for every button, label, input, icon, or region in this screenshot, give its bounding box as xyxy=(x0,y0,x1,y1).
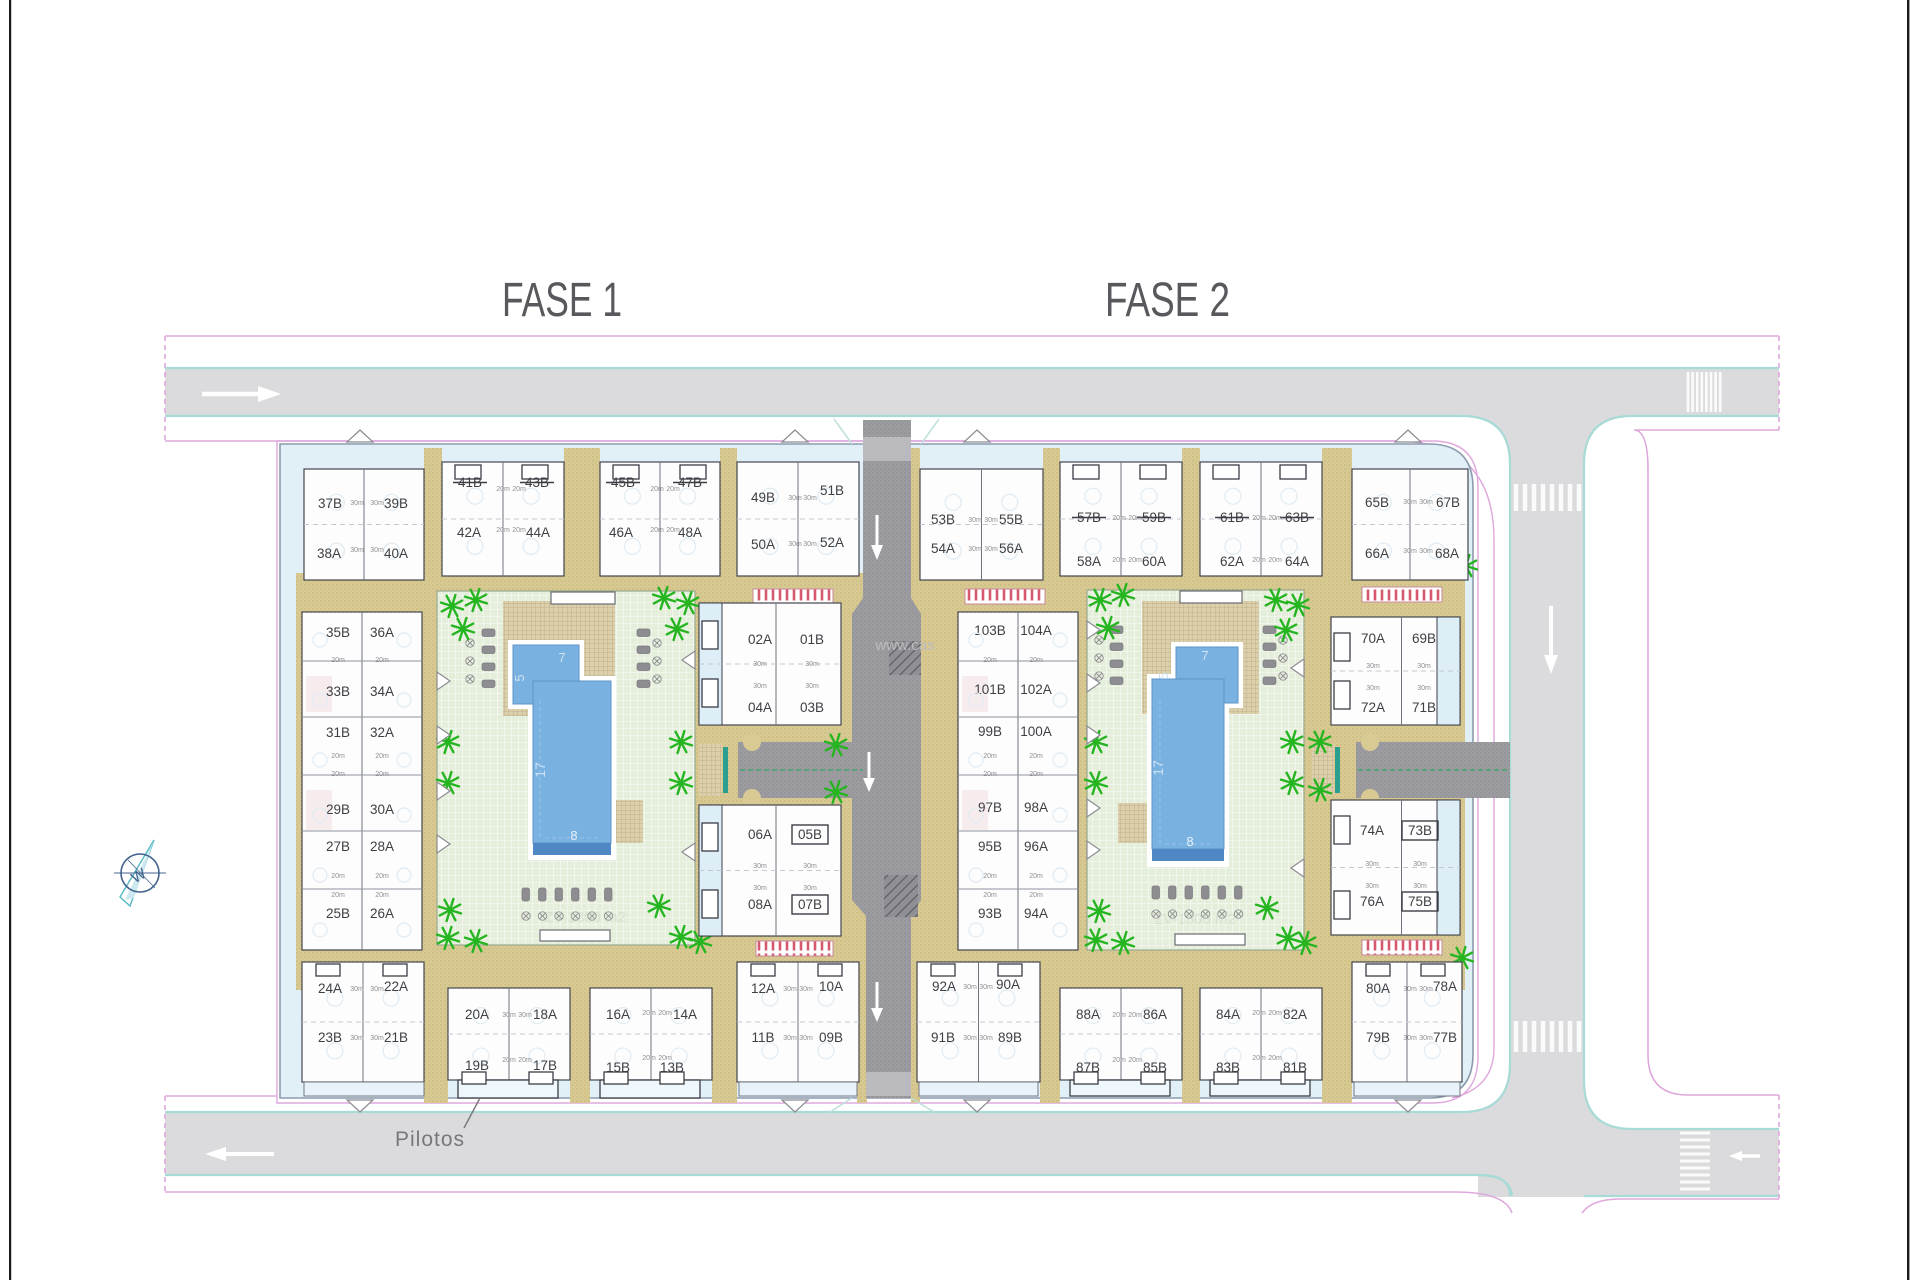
svg-text:7: 7 xyxy=(558,650,565,665)
svg-text:30m: 30m xyxy=(370,500,384,507)
svg-text:20m: 20m xyxy=(331,657,345,664)
svg-text:20m: 20m xyxy=(502,1057,516,1064)
svg-text:33B: 33B xyxy=(326,684,350,699)
svg-text:58A: 58A xyxy=(1077,554,1101,569)
svg-text:30m: 30m xyxy=(783,986,797,993)
svg-text:30m: 30m xyxy=(979,1035,993,1042)
svg-text:20m: 20m xyxy=(1112,515,1126,522)
svg-text:20m: 20m xyxy=(658,1055,672,1062)
svg-text:72A: 72A xyxy=(1361,700,1385,715)
svg-text:98A: 98A xyxy=(1024,800,1048,815)
svg-text:27B: 27B xyxy=(326,839,350,854)
svg-text:49B: 49B xyxy=(751,490,775,505)
svg-text:20m: 20m xyxy=(650,527,664,534)
svg-text:20m: 20m xyxy=(375,873,389,880)
svg-text:44A: 44A xyxy=(526,525,550,540)
svg-text:30m: 30m xyxy=(1419,1035,1433,1042)
svg-text:19B: 19B xyxy=(465,1058,489,1073)
svg-text:20m: 20m xyxy=(518,1057,532,1064)
svg-text:30m: 30m xyxy=(803,863,817,870)
svg-text:75B: 75B xyxy=(1408,894,1432,909)
svg-text:90A: 90A xyxy=(996,977,1020,992)
svg-text:11B: 11B xyxy=(751,1030,774,1045)
svg-text:30m: 30m xyxy=(963,1035,977,1042)
svg-text:20m: 20m xyxy=(331,771,345,778)
svg-text:30m: 30m xyxy=(350,547,364,554)
svg-text:71B: 71B xyxy=(1412,700,1436,715)
svg-text:30m: 30m xyxy=(1417,685,1431,692)
svg-text:80A: 80A xyxy=(1366,981,1390,996)
svg-text:25B: 25B xyxy=(326,906,350,921)
svg-text:30m: 30m xyxy=(350,500,364,507)
svg-text:17: 17 xyxy=(1150,760,1166,776)
svg-text:82A: 82A xyxy=(1283,1007,1307,1022)
svg-text:20m: 20m xyxy=(331,892,345,899)
svg-text:26A: 26A xyxy=(370,906,394,921)
svg-text:06A: 06A xyxy=(748,827,772,842)
svg-text:02A: 02A xyxy=(748,632,772,647)
svg-text:46A: 46A xyxy=(609,525,633,540)
svg-text:30m: 30m xyxy=(1403,986,1417,993)
svg-text:www.cas: www.cas xyxy=(874,637,934,654)
svg-text:54A: 54A xyxy=(931,541,955,556)
svg-text:20m: 20m xyxy=(1268,515,1282,522)
svg-text:20m: 20m xyxy=(1268,1010,1282,1017)
svg-text:30m: 30m xyxy=(1403,499,1417,506)
svg-text:30m: 30m xyxy=(1419,986,1433,993)
svg-text:48A: 48A xyxy=(678,525,702,540)
svg-text:30m: 30m xyxy=(1417,663,1431,670)
svg-text:30m: 30m xyxy=(502,1012,516,1019)
svg-text:30m: 30m xyxy=(1366,685,1380,692)
svg-text:39B: 39B xyxy=(384,496,408,511)
svg-text:03B: 03B xyxy=(800,700,824,715)
svg-text:67B: 67B xyxy=(1436,495,1460,510)
svg-text:100A: 100A xyxy=(1020,724,1052,739)
svg-text:20m: 20m xyxy=(375,771,389,778)
svg-text:73B: 73B xyxy=(1408,823,1432,838)
svg-text:22A: 22A xyxy=(384,979,408,994)
svg-text:21B: 21B xyxy=(384,1030,408,1045)
svg-text:20m: 20m xyxy=(1029,657,1043,664)
svg-text:88A: 88A xyxy=(1076,1007,1100,1022)
svg-text:20m: 20m xyxy=(1268,557,1282,564)
svg-text:30m: 30m xyxy=(1366,663,1380,670)
svg-text:20m: 20m xyxy=(512,527,526,534)
svg-text:53B: 53B xyxy=(931,512,955,527)
svg-text:30m: 30m xyxy=(783,1035,797,1042)
svg-text:20m: 20m xyxy=(375,753,389,760)
svg-text:28A: 28A xyxy=(370,839,394,854)
svg-text:31B: 31B xyxy=(326,725,350,740)
svg-text:08A: 08A xyxy=(748,897,772,912)
svg-text:30m: 30m xyxy=(753,661,767,668)
svg-text:24A: 24A xyxy=(318,981,342,996)
svg-text:93B: 93B xyxy=(978,906,1002,921)
svg-text:20m: 20m xyxy=(331,873,345,880)
svg-text:20m: 20m xyxy=(1112,1012,1126,1019)
svg-text:89B: 89B xyxy=(998,1030,1022,1045)
svg-text:5: 5 xyxy=(512,674,527,681)
svg-text:30m: 30m xyxy=(1403,1035,1417,1042)
svg-text:30m: 30m xyxy=(350,1035,364,1042)
svg-text:30m: 30m xyxy=(963,984,977,991)
svg-text:20m: 20m xyxy=(375,892,389,899)
svg-text:96A: 96A xyxy=(1024,839,1048,854)
svg-text:102A: 102A xyxy=(1020,682,1052,697)
svg-text:09B: 09B xyxy=(819,1030,843,1045)
svg-text:18A: 18A xyxy=(533,1007,557,1022)
svg-text:103B: 103B xyxy=(974,623,1006,638)
svg-text:30m: 30m xyxy=(370,547,384,554)
svg-text:91B: 91B xyxy=(931,1030,955,1045)
svg-text:30m: 30m xyxy=(788,541,802,548)
svg-text:69B: 69B xyxy=(1412,631,1436,646)
svg-text:74A: 74A xyxy=(1360,823,1384,838)
svg-text:20m: 20m xyxy=(642,1055,656,1062)
svg-text:40A: 40A xyxy=(384,546,408,561)
svg-text:51B: 51B xyxy=(820,483,844,498)
svg-text:30A: 30A xyxy=(370,802,394,817)
svg-text:16A: 16A xyxy=(606,1007,630,1022)
svg-text:30m: 30m xyxy=(805,661,819,668)
svg-text:76A: 76A xyxy=(1360,894,1384,909)
svg-text:30m: 30m xyxy=(1365,883,1379,890)
svg-text:20m: 20m xyxy=(1252,557,1266,564)
svg-text:30m: 30m xyxy=(1413,861,1427,868)
svg-text:20m: 20m xyxy=(1128,1057,1142,1064)
svg-text:20m: 20m xyxy=(1268,1055,1282,1062)
svg-text:42A: 42A xyxy=(457,525,481,540)
svg-text:20m: 20m xyxy=(650,486,664,493)
svg-text:35B: 35B xyxy=(326,625,350,640)
svg-text:37B: 37B xyxy=(318,496,342,511)
svg-text:30m: 30m xyxy=(788,495,802,502)
svg-text:78A: 78A xyxy=(1433,979,1457,994)
svg-text:20m: 20m xyxy=(512,486,526,493)
svg-text:64A: 64A xyxy=(1285,554,1309,569)
svg-text:30m: 30m xyxy=(350,986,364,993)
svg-text:20m: 20m xyxy=(1112,1057,1126,1064)
svg-text:20m: 20m xyxy=(1029,892,1043,899)
svg-text:8: 8 xyxy=(1186,834,1193,849)
svg-text:FASE 2: FASE 2 xyxy=(1105,274,1230,327)
svg-text:70A: 70A xyxy=(1361,631,1385,646)
svg-text:55B: 55B xyxy=(999,512,1023,527)
svg-text:86A: 86A xyxy=(1143,1007,1167,1022)
svg-text:20m: 20m xyxy=(983,657,997,664)
svg-text:32A: 32A xyxy=(370,725,394,740)
svg-text:20m: 20m xyxy=(1029,771,1043,778)
svg-text:04A: 04A xyxy=(748,700,772,715)
svg-text:07B: 07B xyxy=(798,897,822,912)
svg-text:10A: 10A xyxy=(819,979,843,994)
svg-text:30m: 30m xyxy=(370,1035,384,1042)
svg-text:20m: 20m xyxy=(1252,1010,1266,1017)
svg-text:20m: 20m xyxy=(642,1010,656,1017)
svg-text:12A: 12A xyxy=(751,981,775,996)
svg-text:01B: 01B xyxy=(800,632,824,647)
svg-text:60A: 60A xyxy=(1142,554,1166,569)
svg-text:30m: 30m xyxy=(1419,548,1433,555)
svg-text:20A: 20A xyxy=(465,1007,489,1022)
svg-text:92A: 92A xyxy=(932,979,956,994)
svg-text:23B: 23B xyxy=(318,1030,342,1045)
svg-text:30m: 30m xyxy=(803,885,817,892)
svg-text:30m: 30m xyxy=(1403,548,1417,555)
svg-text:30m: 30m xyxy=(518,1012,532,1019)
svg-text:20m: 20m xyxy=(496,527,510,534)
svg-text:20m: 20m xyxy=(1029,753,1043,760)
svg-text:30m: 30m xyxy=(968,517,982,524)
svg-text:30m: 30m xyxy=(805,683,819,690)
svg-text:30m: 30m xyxy=(803,541,817,548)
svg-text:94A: 94A xyxy=(1024,906,1048,921)
svg-text:97B: 97B xyxy=(978,800,1002,815)
svg-text:30m: 30m xyxy=(1365,861,1379,868)
svg-text:79B: 79B xyxy=(1366,1030,1390,1045)
svg-text:50A: 50A xyxy=(751,537,775,552)
svg-text:20m: 20m xyxy=(658,1010,672,1017)
svg-text:20m: 20m xyxy=(983,873,997,880)
svg-text:62A: 62A xyxy=(1220,554,1244,569)
svg-text:30m: 30m xyxy=(753,683,767,690)
svg-text:20m: 20m xyxy=(983,753,997,760)
svg-text:30m: 30m xyxy=(799,986,813,993)
svg-text:99B: 99B xyxy=(978,724,1002,739)
svg-text:30m: 30m xyxy=(803,495,817,502)
svg-text:30m: 30m xyxy=(979,984,993,991)
svg-text:14A: 14A xyxy=(673,1007,697,1022)
svg-text:30m: 30m xyxy=(968,546,982,553)
svg-text:17B: 17B xyxy=(533,1058,557,1073)
svg-text:20m: 20m xyxy=(1128,515,1142,522)
svg-text:38A: 38A xyxy=(317,546,341,561)
svg-text:05B: 05B xyxy=(798,827,822,842)
svg-text:101B: 101B xyxy=(974,682,1006,697)
svg-text:20m: 20m xyxy=(1112,557,1126,564)
svg-text:95B: 95B xyxy=(978,839,1002,854)
svg-text:FASE 1: FASE 1 xyxy=(502,274,622,327)
svg-text:20m: 20m xyxy=(496,486,510,493)
svg-text:84A: 84A xyxy=(1216,1007,1240,1022)
svg-text:7: 7 xyxy=(1201,648,1208,663)
svg-text:20m: 20m xyxy=(666,527,680,534)
svg-text:30m: 30m xyxy=(799,1035,813,1042)
svg-text:52A: 52A xyxy=(820,535,844,550)
svg-text:30m: 30m xyxy=(984,517,998,524)
svg-text:56A: 56A xyxy=(999,541,1023,556)
svg-text:20m: 20m xyxy=(1029,873,1043,880)
svg-text:30m: 30m xyxy=(1419,499,1433,506)
svg-text:20m: 20m xyxy=(1128,557,1142,564)
svg-text:8: 8 xyxy=(570,828,577,843)
svg-text:20m: 20m xyxy=(666,486,680,493)
svg-text:30m: 30m xyxy=(753,885,767,892)
svg-text:5: 5 xyxy=(1156,672,1171,679)
svg-text:36A: 36A xyxy=(370,625,394,640)
svg-text:20m: 20m xyxy=(983,892,997,899)
svg-text:20m: 20m xyxy=(1252,1055,1266,1062)
svg-text:30m: 30m xyxy=(753,863,767,870)
svg-text:Pilotos: Pilotos xyxy=(395,1128,465,1151)
svg-text:ZV-1300 m2: ZV-1300 m2 xyxy=(544,909,626,926)
svg-text:68A: 68A xyxy=(1435,546,1459,561)
svg-text:20m: 20m xyxy=(375,657,389,664)
svg-text:77B: 77B xyxy=(1433,1030,1457,1045)
svg-text:20m: 20m xyxy=(1252,515,1266,522)
svg-text:30m: 30m xyxy=(984,546,998,553)
svg-text:20m: 20m xyxy=(1128,1012,1142,1019)
svg-text:104A: 104A xyxy=(1020,623,1052,638)
svg-text:30m: 30m xyxy=(370,986,384,993)
svg-text:29B: 29B xyxy=(326,802,350,817)
svg-text:20m: 20m xyxy=(331,753,345,760)
svg-text:30m: 30m xyxy=(1413,883,1427,890)
svg-text:20m: 20m xyxy=(983,771,997,778)
svg-text:65B: 65B xyxy=(1365,495,1389,510)
svg-text:34A: 34A xyxy=(370,684,394,699)
svg-text:66A: 66A xyxy=(1365,546,1389,561)
svg-text:ZV-1300 m2: ZV-1300 m2 xyxy=(1154,911,1236,928)
